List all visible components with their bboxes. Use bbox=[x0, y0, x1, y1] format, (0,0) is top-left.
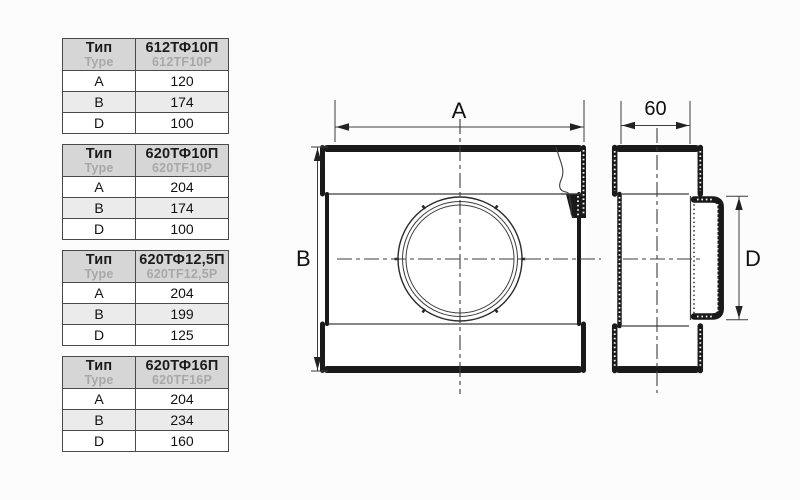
dimension-60: 60 bbox=[621, 98, 690, 144]
dim-d-arrow-top bbox=[735, 198, 742, 211]
dim-b-label: B bbox=[296, 246, 311, 271]
dim-d-arrow-bottom bbox=[735, 306, 742, 319]
dimension-a: A bbox=[335, 98, 584, 142]
dim-60-label: 60 bbox=[644, 98, 666, 120]
dim-60-arrow-left bbox=[622, 122, 635, 130]
side-view bbox=[612, 128, 721, 393]
dim-60-arrow-right bbox=[676, 122, 689, 130]
dimension-d: D bbox=[726, 196, 761, 319]
technical-drawing: A B bbox=[0, 0, 800, 500]
dim-d-label: D bbox=[745, 246, 761, 271]
dim-a-arrow-left bbox=[336, 123, 349, 131]
dim-a-arrow-right bbox=[570, 123, 583, 131]
front-view bbox=[320, 119, 601, 394]
dim-a-label: A bbox=[452, 98, 467, 123]
